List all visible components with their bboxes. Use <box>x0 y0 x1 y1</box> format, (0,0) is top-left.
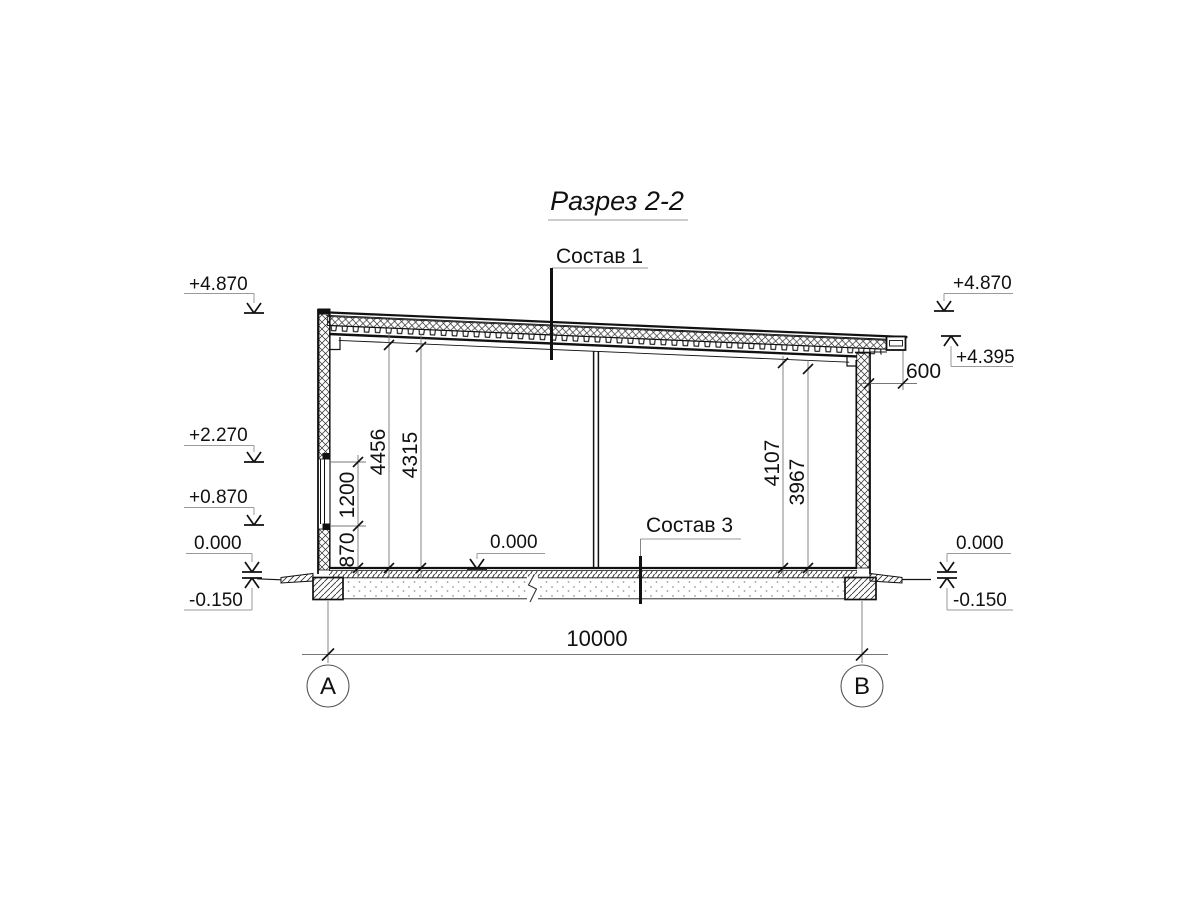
dimension-value: 1200 <box>336 472 359 519</box>
drawing-title: Разрез 2-2 <box>548 186 688 220</box>
elevation-arrow-up <box>242 578 262 588</box>
floor-composition-label: Состав 3 <box>646 514 733 537</box>
elevation-arrow-up <box>941 336 961 346</box>
apron-right <box>870 574 902 584</box>
foundation-right <box>845 574 931 600</box>
elevation-arrow-down <box>244 452 264 462</box>
dimension-span: 10000 <box>302 626 888 661</box>
elevation-arrow-up <box>937 578 957 588</box>
elevation-mark-right-roof: +4.870 <box>934 273 1013 311</box>
elevation-arrow-down <box>937 562 957 572</box>
dimension-value: 3967 <box>786 459 809 506</box>
title-text: Разрез 2-2 <box>550 186 684 216</box>
drawing-sheet: Разрез 2-2 Состав 1 <box>0 0 1200 900</box>
elevation-value: +4.870 <box>953 273 1012 294</box>
elevation-mark-right-eave: +4.395 <box>941 336 1015 368</box>
ground-line-left <box>257 579 281 580</box>
elevation-mark-right-floor: 0.000 <box>937 533 1011 572</box>
elevation-value: +2.270 <box>189 425 248 446</box>
apron-left <box>281 574 313 584</box>
dimension-interior-left: 4456 4315 <box>367 332 426 578</box>
slab-break-symbol <box>527 575 538 602</box>
elevation-mark-left-floor: 0.000 <box>186 533 262 572</box>
floor-slab <box>329 568 857 602</box>
axis-bubble-b: В <box>841 665 883 707</box>
roof-composition-label: Состав 1 <box>556 245 643 268</box>
dimension-interior-right: 4107 3967 <box>761 356 813 578</box>
section-drawing: Разрез 2-2 Состав 1 <box>0 0 1200 900</box>
window-opening <box>321 453 331 530</box>
dimension-value: 870 <box>336 532 359 567</box>
parapet-cap <box>318 309 331 315</box>
elevation-mark-left-window-head: +2.270 <box>184 425 264 462</box>
elevation-mark-left-window-sill: +0.870 <box>184 487 264 525</box>
dimension-value: 4315 <box>399 432 422 479</box>
dimension-value: 10000 <box>566 626 627 651</box>
roof-assembly <box>317 312 908 365</box>
elevation-value: 0.000 <box>194 533 242 554</box>
elevation-mark-left-roof: +4.870 <box>184 274 264 313</box>
elevation-mark-interior-floor: 0.000 <box>467 532 545 569</box>
elevation-value: 0.000 <box>956 533 1004 554</box>
dimension-value: 600 <box>906 360 941 383</box>
floor-screed-layer <box>329 571 857 578</box>
elevation-value: +4.870 <box>189 274 248 295</box>
foundation-left <box>257 574 343 600</box>
middle-column <box>594 351 599 568</box>
dimension-value: 4456 <box>367 429 390 476</box>
axis-label: А <box>320 673 336 700</box>
dimension-left-wall-chain: 1200 870 <box>331 455 366 578</box>
elevation-mark-left-ground: -0.150 <box>184 578 262 611</box>
elevation-value: +0.870 <box>189 487 248 508</box>
axis-bubble-a: А <box>307 665 349 707</box>
dimension-value: 4107 <box>761 440 784 487</box>
window-head-block <box>323 453 331 460</box>
elevation-value: -0.150 <box>953 590 1007 611</box>
elevation-value: -0.150 <box>189 590 243 611</box>
floor-base-layer <box>343 578 845 599</box>
beam-haunch-left <box>330 337 340 350</box>
elevation-value: 0.000 <box>490 532 538 553</box>
window-sill-block <box>323 524 331 531</box>
axis-label: В <box>854 673 870 700</box>
elevation-arrow-down <box>244 515 264 525</box>
elevation-value: +4.395 <box>956 347 1015 368</box>
elevation-arrow-down <box>934 301 954 311</box>
elevation-mark-right-ground: -0.150 <box>937 578 1013 611</box>
elevation-arrow-down <box>242 562 262 572</box>
elevation-arrow-down <box>244 303 264 313</box>
